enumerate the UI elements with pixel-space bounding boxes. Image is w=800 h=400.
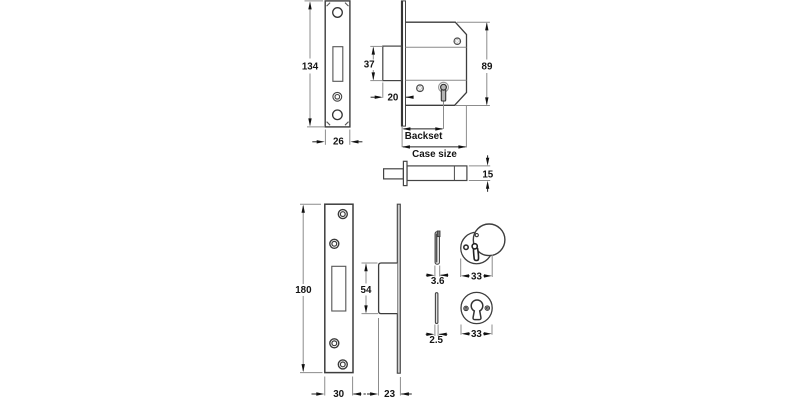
svg-text:Case size: Case size (412, 149, 457, 160)
svg-text:30: 30 (333, 389, 344, 400)
svg-text:180: 180 (295, 285, 312, 296)
svg-text:26: 26 (333, 136, 344, 147)
svg-text:23: 23 (384, 389, 395, 400)
svg-text:33: 33 (471, 329, 482, 340)
svg-text:54: 54 (361, 285, 372, 296)
svg-text:89: 89 (482, 62, 493, 73)
svg-text:15: 15 (482, 170, 493, 181)
svg-text:Backset: Backset (405, 131, 443, 142)
svg-text:37: 37 (364, 59, 375, 70)
svg-text:3.6: 3.6 (431, 276, 445, 287)
svg-text:20: 20 (387, 92, 398, 103)
svg-text:33: 33 (471, 271, 482, 282)
svg-text:134: 134 (302, 61, 319, 72)
svg-text:2.5: 2.5 (429, 335, 443, 346)
